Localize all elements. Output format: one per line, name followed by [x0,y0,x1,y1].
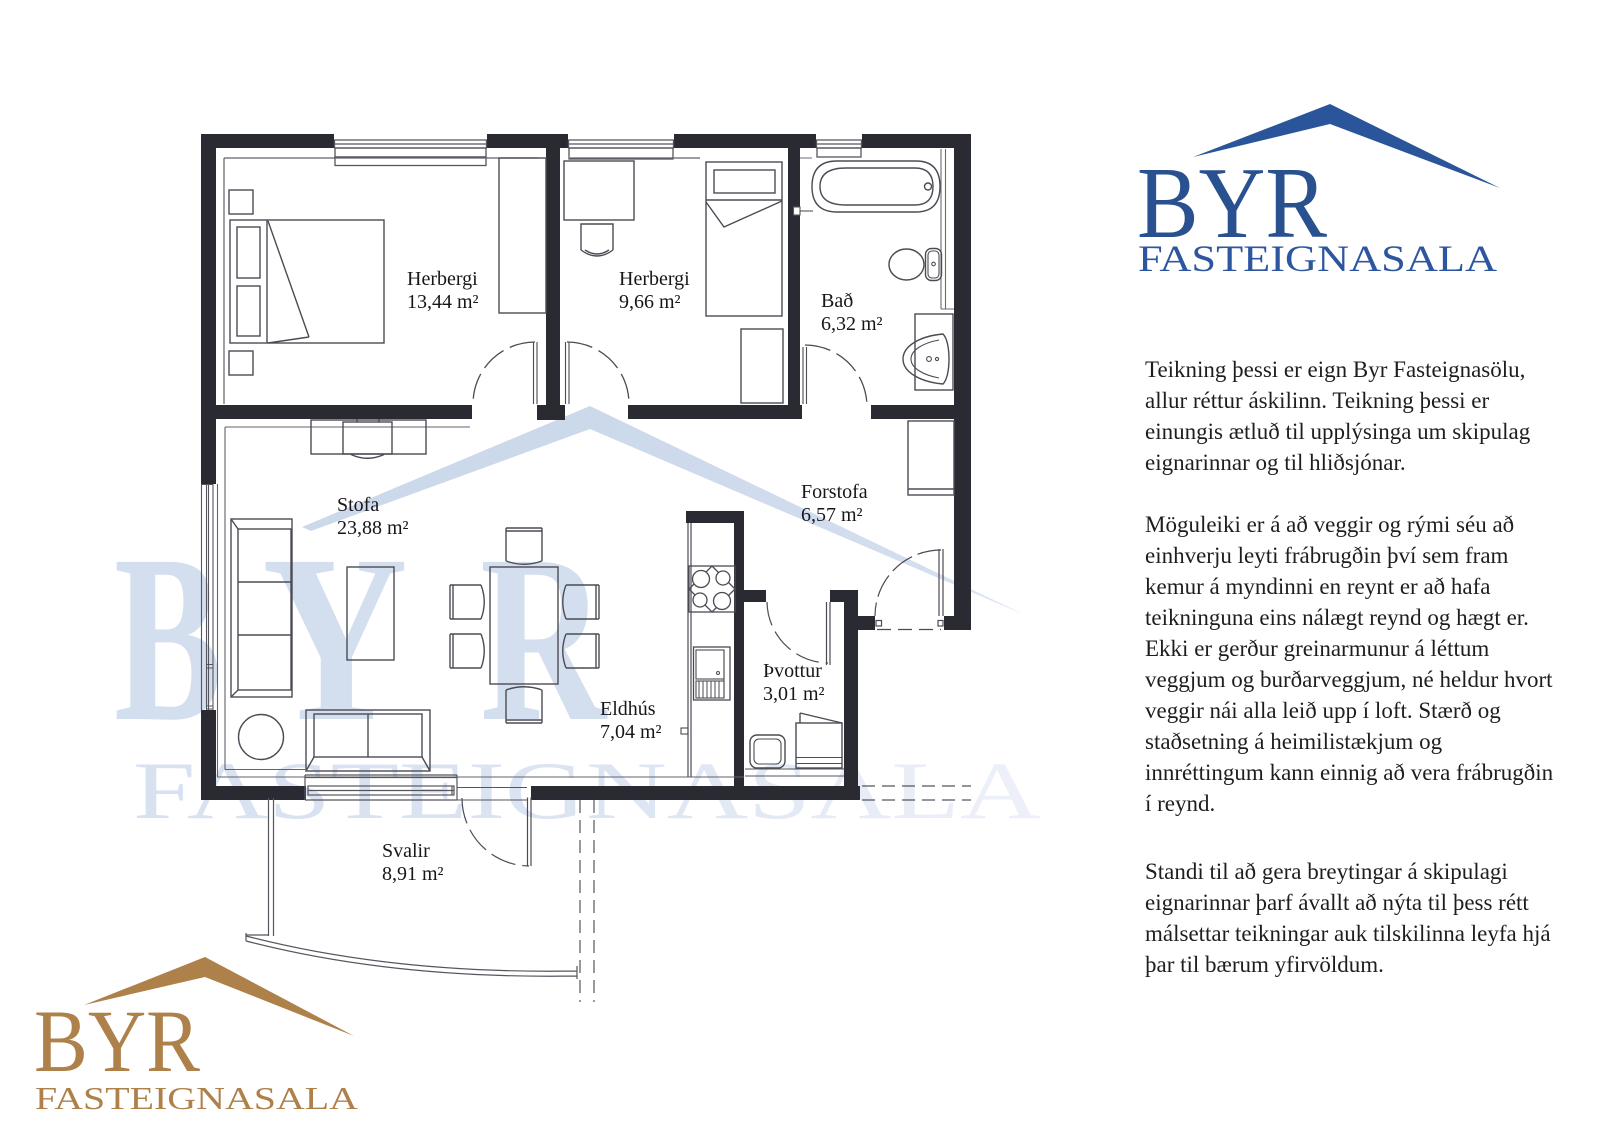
svg-text:Y: Y [262,505,408,771]
svg-text:BYR: BYR [34,993,201,1091]
svg-text:FASTEIGNASALA: FASTEIGNASALA [35,1080,358,1116]
svg-text:FASTEIGNASALA: FASTEIGNASALA [1138,239,1497,280]
svg-text:R: R [480,505,608,771]
